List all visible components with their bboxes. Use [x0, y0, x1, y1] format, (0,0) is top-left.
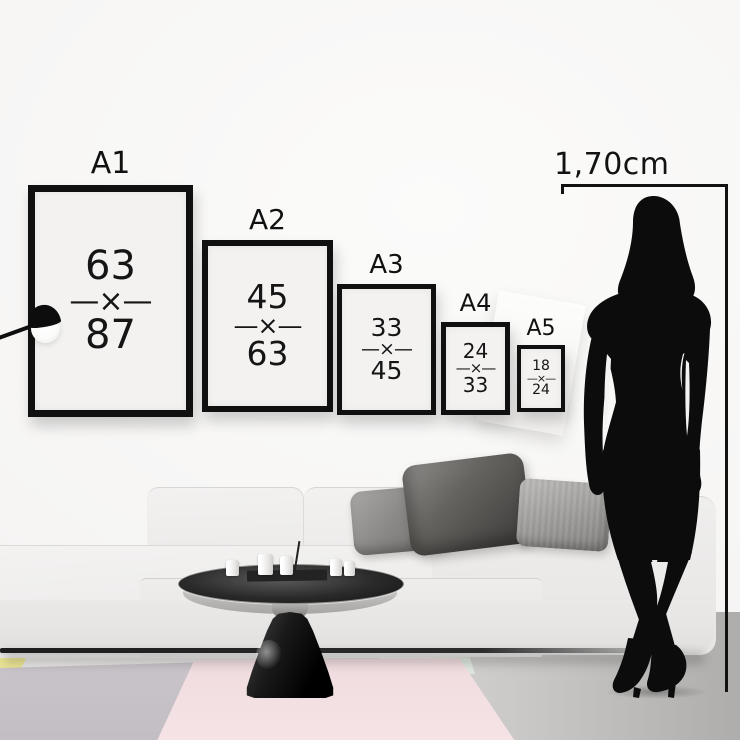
- woman-thighs: [602, 450, 700, 560]
- woman-right-heel: [668, 681, 676, 698]
- scene-root: { "height_marker": { "label": "1,70cm" }…: [0, 0, 740, 740]
- woman-right-shoe: [647, 642, 686, 692]
- woman-silhouette: [0, 0, 740, 740]
- woman-hair: [618, 196, 695, 302]
- woman-left-heel: [633, 687, 641, 698]
